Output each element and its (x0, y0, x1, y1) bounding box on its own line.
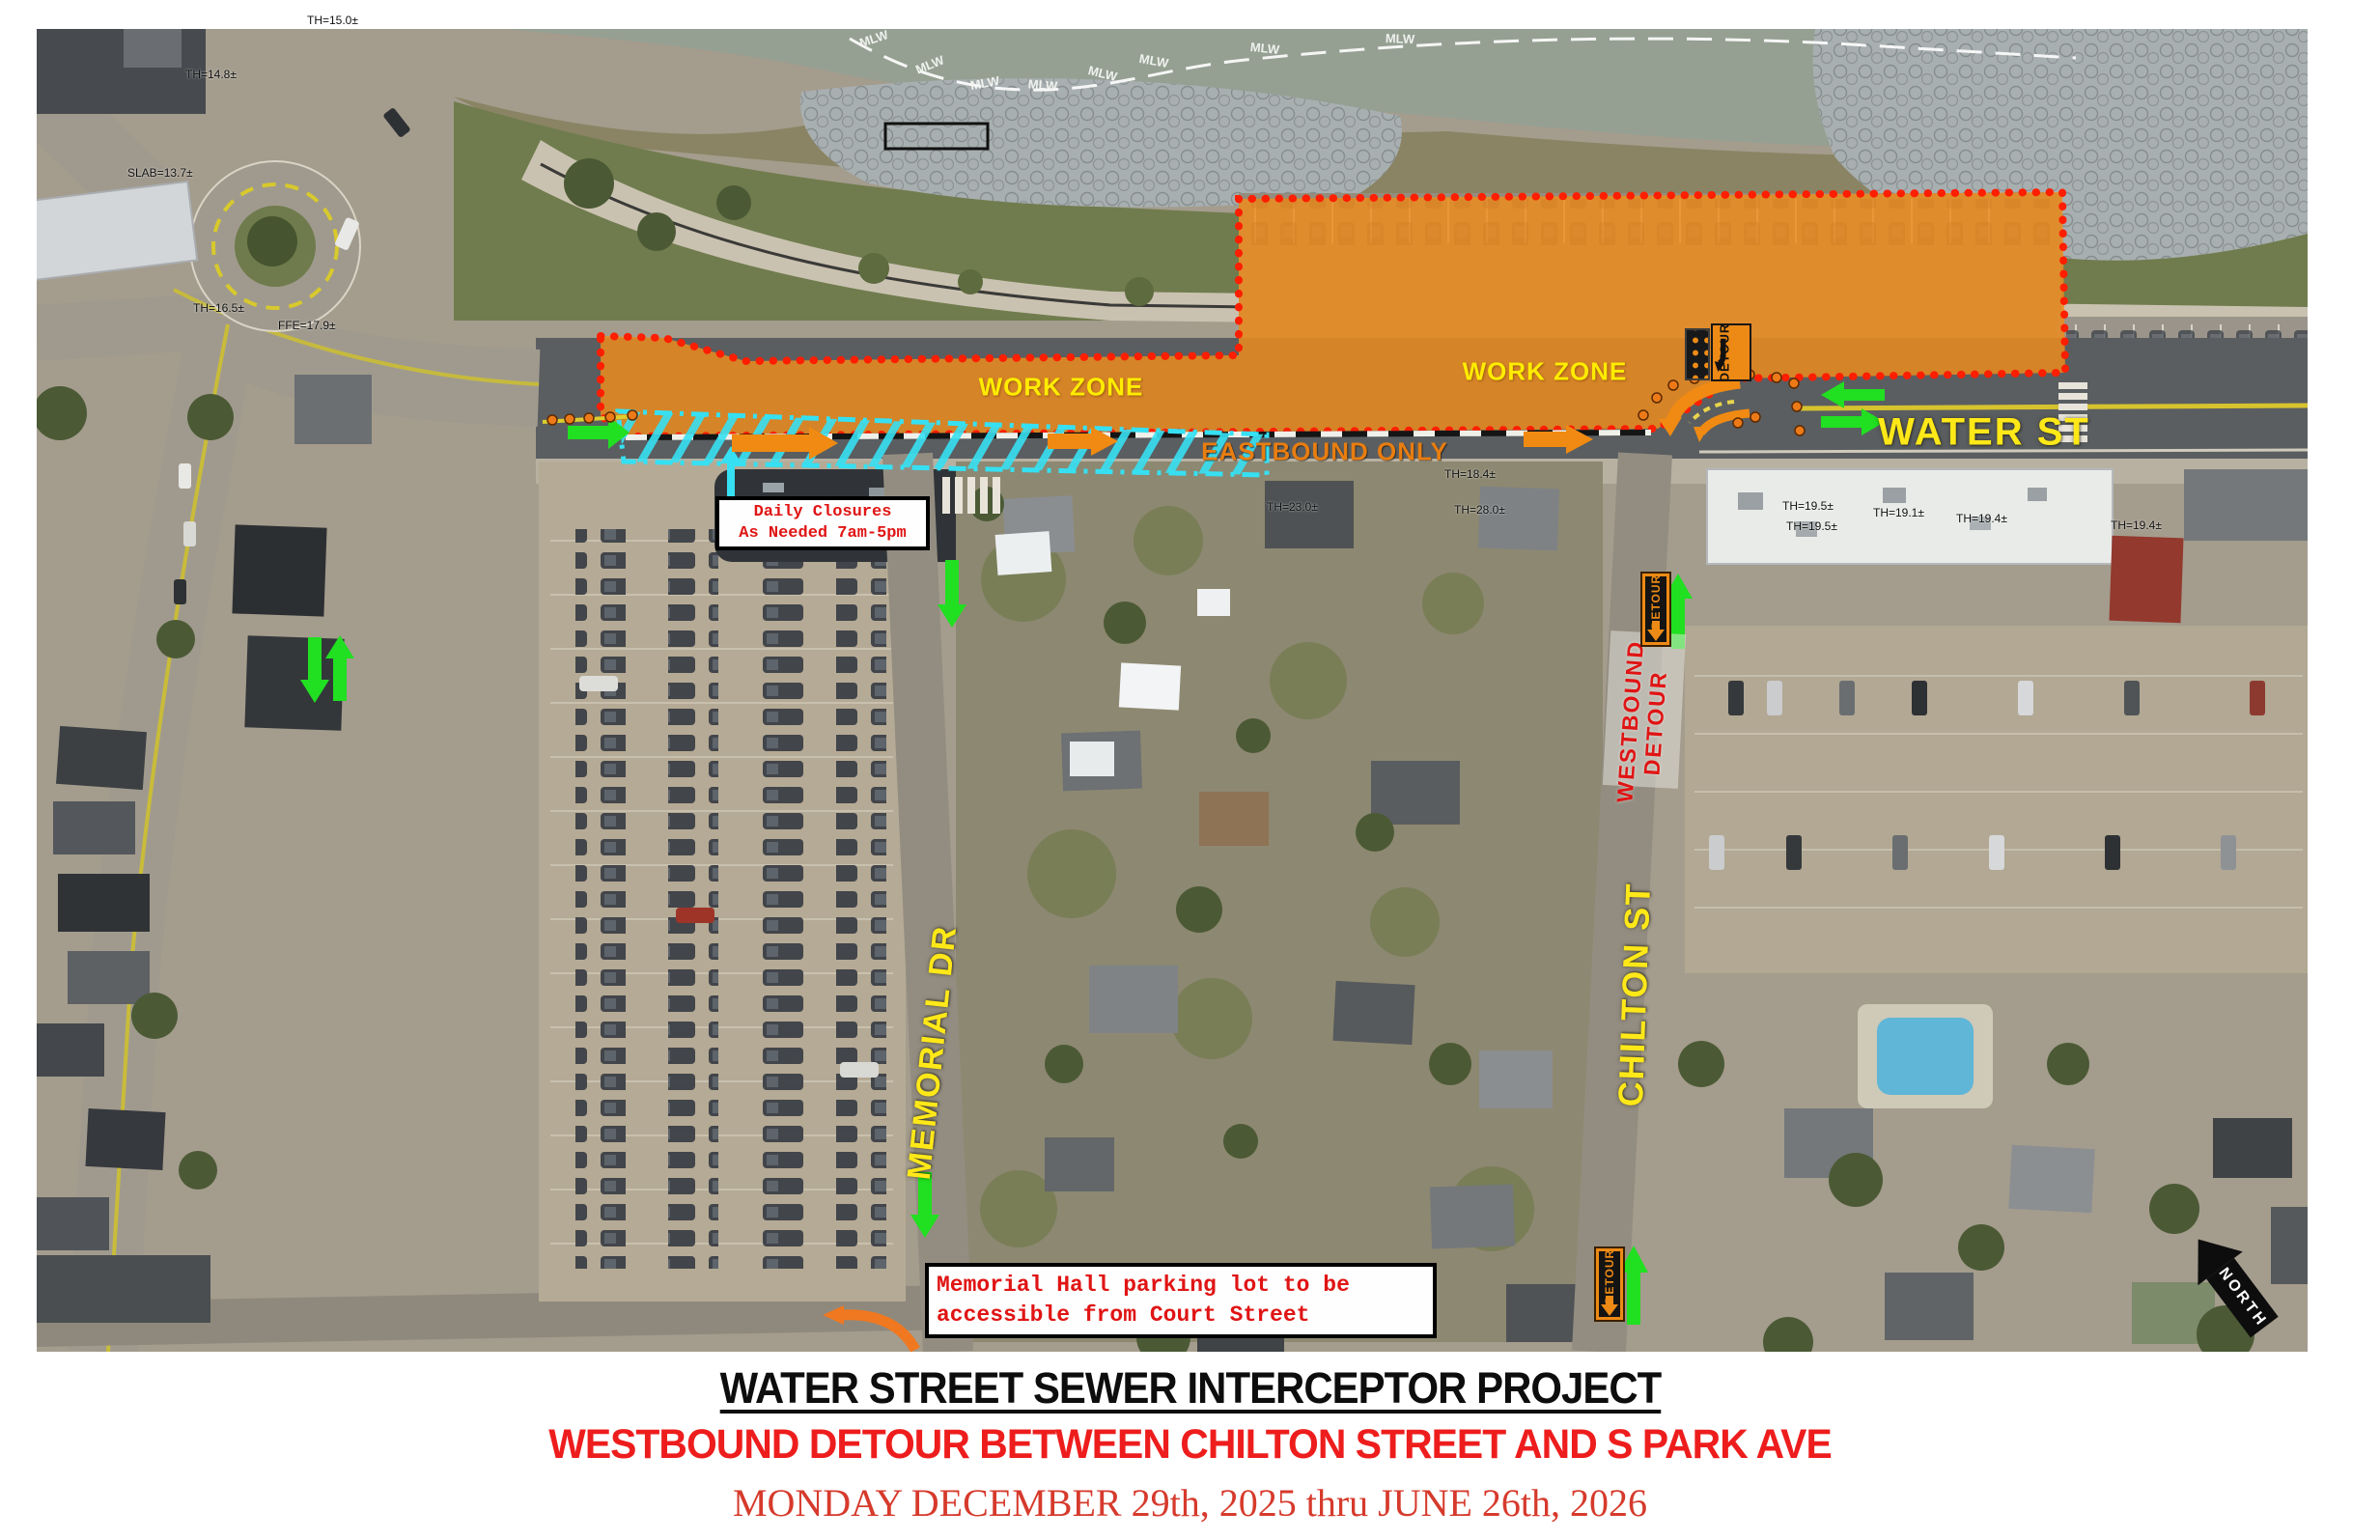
memorial-hall-note: Memorial Hall parking lot to be accessib… (925, 1263, 1437, 1338)
detour-sign-icon: DETOUR (1711, 323, 1751, 381)
mlw-label: MLW (1386, 31, 1415, 46)
survey-label: TH=19.5± (1782, 499, 1834, 513)
survey-label: TH=19.5± (1786, 519, 1837, 533)
detour-map-page: MLW MLW MLW MLW MLW MLW MLW MLW TH=15.0±… (0, 0, 2380, 1540)
survey-label: FFE=17.9± (278, 319, 336, 332)
arrow-board-sign (1685, 328, 1710, 380)
survey-label: TH=18.4± (1444, 467, 1496, 481)
daily-closures-note: Daily Closures As Needed 7am-5pm (715, 496, 930, 550)
daily-closures-line2: As Needed 7am-5pm (719, 523, 926, 545)
footer-date-range: MONDAY DECEMBER 29th, 2025 thru JUNE 26t… (0, 1480, 2380, 1526)
survey-label: TH=14.8± (185, 68, 237, 81)
survey-label: TH=19.1± (1873, 506, 1924, 519)
detour-sign-icon: DETOUR (1640, 572, 1671, 647)
detour-sign-icon: DETOUR (1594, 1246, 1625, 1322)
footer-title: WATER STREET SEWER INTERCEPTOR PROJECT (719, 1363, 1661, 1414)
water-st-label: WATER ST (1878, 411, 2090, 455)
mlw-label: MLW (1249, 40, 1280, 57)
memorial-hall-line1: Memorial Hall parking lot to be (937, 1271, 1425, 1301)
work-zone-label-west: WORK ZONE (979, 373, 1144, 403)
bent-arrow-icon (1713, 333, 1730, 376)
survey-label: TH=28.0± (1454, 503, 1505, 517)
eastbound-only-label: EASTBOUND ONLY (1201, 437, 1448, 467)
work-zone-label-east: WORK ZONE (1463, 357, 1628, 387)
survey-label: TH=19.4± (1956, 512, 2007, 525)
survey-label: TH=23.0± (1267, 500, 1318, 514)
survey-label: TH=19.4± (2111, 518, 2162, 532)
memorial-hall-line2: accessible from Court Street (937, 1301, 1425, 1330)
survey-label: SLAB=13.7± (127, 166, 193, 180)
footer-subtitle: WESTBOUND DETOUR BETWEEN CHILTON STREET … (60, 1421, 2321, 1469)
daily-closures-line1: Daily Closures (719, 502, 926, 523)
chilton-st-label: CHILTON ST (1610, 882, 1659, 1107)
survey-label: TH=16.5± (193, 301, 244, 315)
survey-label: TH=15.0± (307, 14, 358, 27)
footer-caption: WATER STREET SEWER INTERCEPTOR PROJECT W… (0, 1352, 2380, 1526)
mlw-label: MLW (1027, 76, 1057, 93)
